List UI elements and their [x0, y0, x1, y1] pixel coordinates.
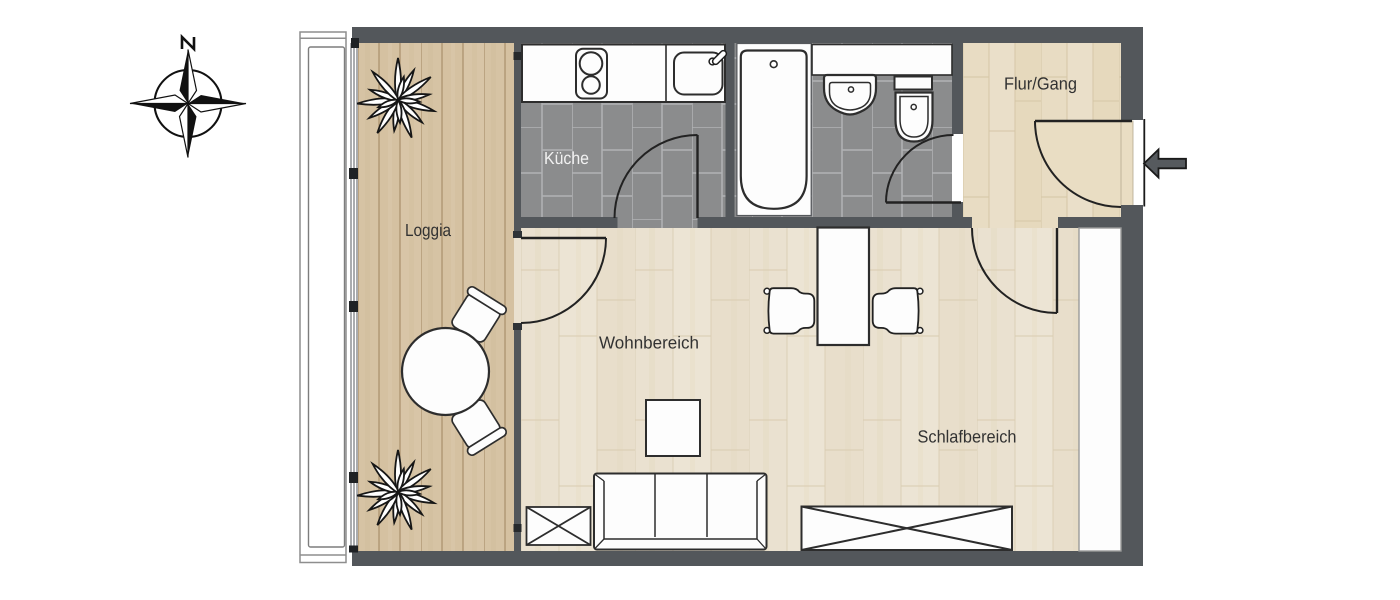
svg-text:Küche: Küche	[544, 148, 589, 168]
svg-text:Loggia: Loggia	[405, 220, 451, 240]
svg-text:Flur/Gang: Flur/Gang	[1004, 74, 1077, 94]
svg-text:Schlafbereich: Schlafbereich	[918, 427, 1017, 447]
svg-text:Wohnbereich: Wohnbereich	[599, 333, 699, 353]
